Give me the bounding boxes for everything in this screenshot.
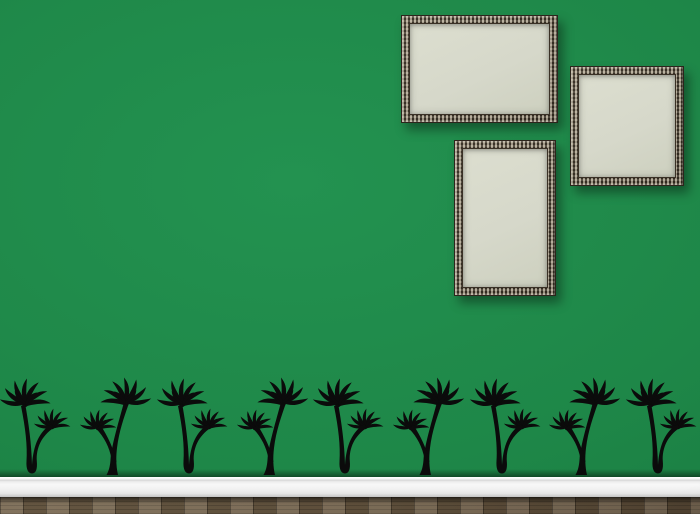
palm-decal-solid-trunk bbox=[237, 388, 307, 478]
frame-portrait bbox=[454, 140, 556, 296]
frame-square bbox=[570, 66, 684, 186]
palm-decal-solid-trunk bbox=[393, 388, 463, 478]
empty-canvas bbox=[578, 74, 676, 178]
palm-decal-solid-trunk bbox=[80, 388, 150, 478]
palm-trees-icon bbox=[80, 388, 150, 478]
room-scene bbox=[0, 0, 700, 514]
palm-decal-hollow-trunk bbox=[627, 388, 697, 478]
empty-canvas bbox=[409, 23, 550, 115]
palm-trees-icon bbox=[549, 388, 619, 478]
palm-decal-hollow-trunk bbox=[314, 388, 384, 478]
palm-trees-icon bbox=[627, 388, 697, 478]
palm-trees-icon bbox=[1, 388, 71, 478]
palm-trees-icon bbox=[471, 388, 541, 478]
baseboard bbox=[0, 477, 700, 497]
palm-decal-hollow-trunk bbox=[1, 388, 71, 478]
empty-canvas bbox=[462, 148, 548, 288]
palm-trees-icon bbox=[237, 388, 307, 478]
frame-landscape bbox=[401, 15, 558, 123]
palm-decal-hollow-trunk bbox=[471, 388, 541, 478]
palm-trees-icon bbox=[314, 388, 384, 478]
parquet-floor bbox=[0, 497, 700, 514]
palm-trees-icon bbox=[158, 388, 228, 478]
palm-trees-icon bbox=[393, 388, 463, 478]
wall bbox=[0, 0, 700, 477]
palm-decal-hollow-trunk bbox=[158, 388, 228, 478]
palm-decal-solid-trunk bbox=[549, 388, 619, 478]
